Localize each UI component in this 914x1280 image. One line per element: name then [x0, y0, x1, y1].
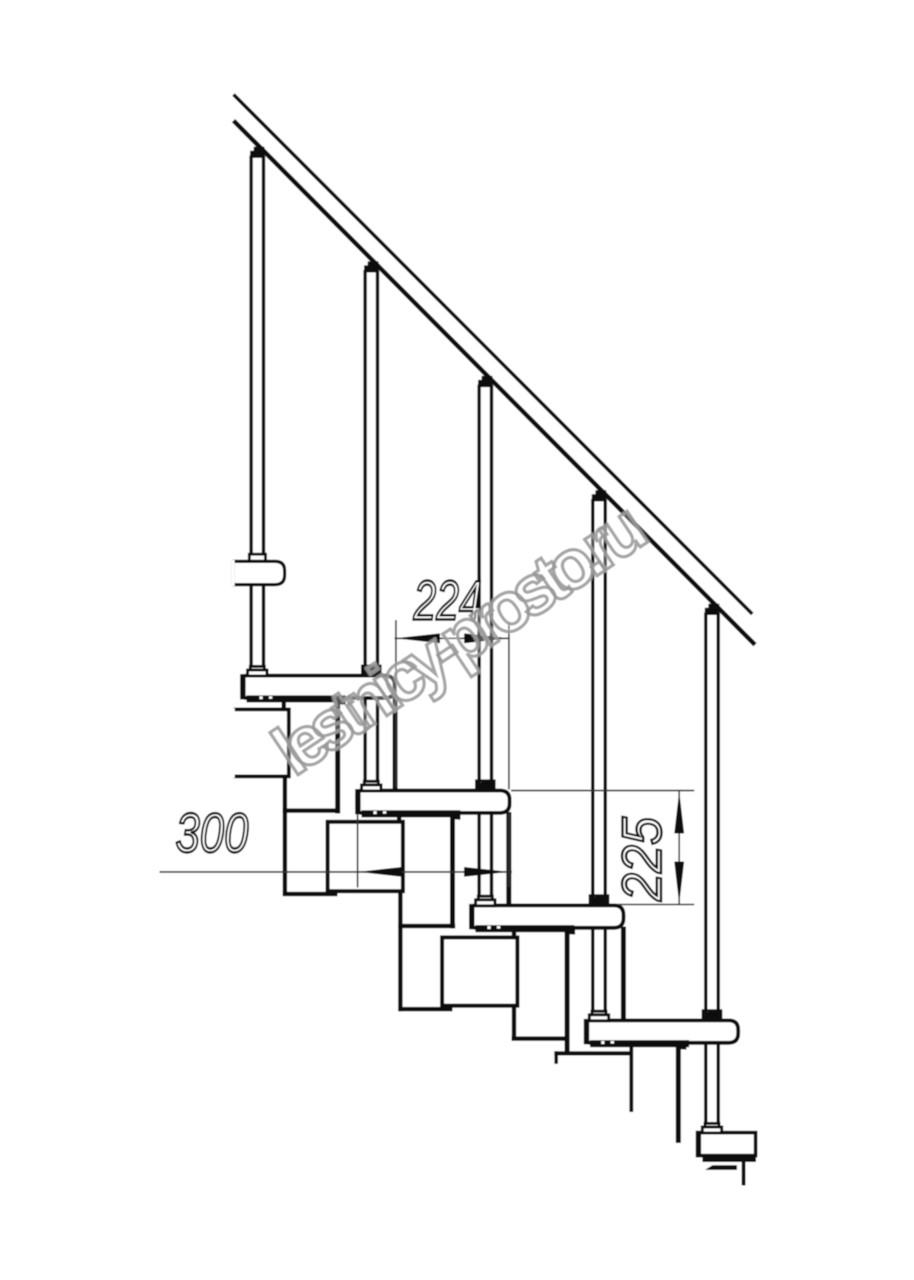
svg-text:225: 225 — [612, 817, 674, 902]
svg-text:300: 300 — [176, 802, 249, 864]
